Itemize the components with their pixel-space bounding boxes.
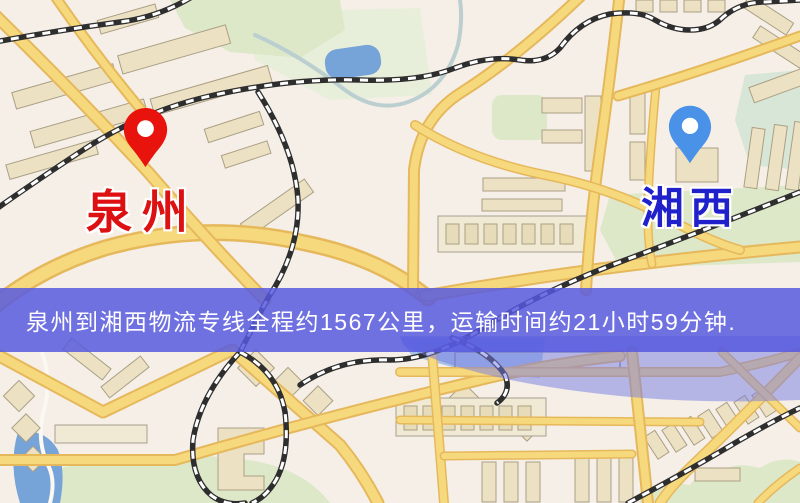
origin-pin-icon <box>121 107 170 168</box>
destination-marker[interactable] <box>667 104 713 170</box>
map-canvas[interactable] <box>0 0 800 503</box>
route-info-banner: 泉州到湘西物流专线全程约1567公里，运输时间约21小时59分钟. <box>0 288 800 352</box>
route-info-text: 泉州到湘西物流专线全程约1567公里，运输时间约21小时59分钟. <box>26 303 736 337</box>
origin-marker[interactable] <box>121 107 170 173</box>
destination-pin-icon <box>667 104 713 165</box>
map-view: 泉州到湘西物流专线全程约1567公里，运输时间约21小时59分钟. 泉州 湘西 <box>0 0 800 503</box>
